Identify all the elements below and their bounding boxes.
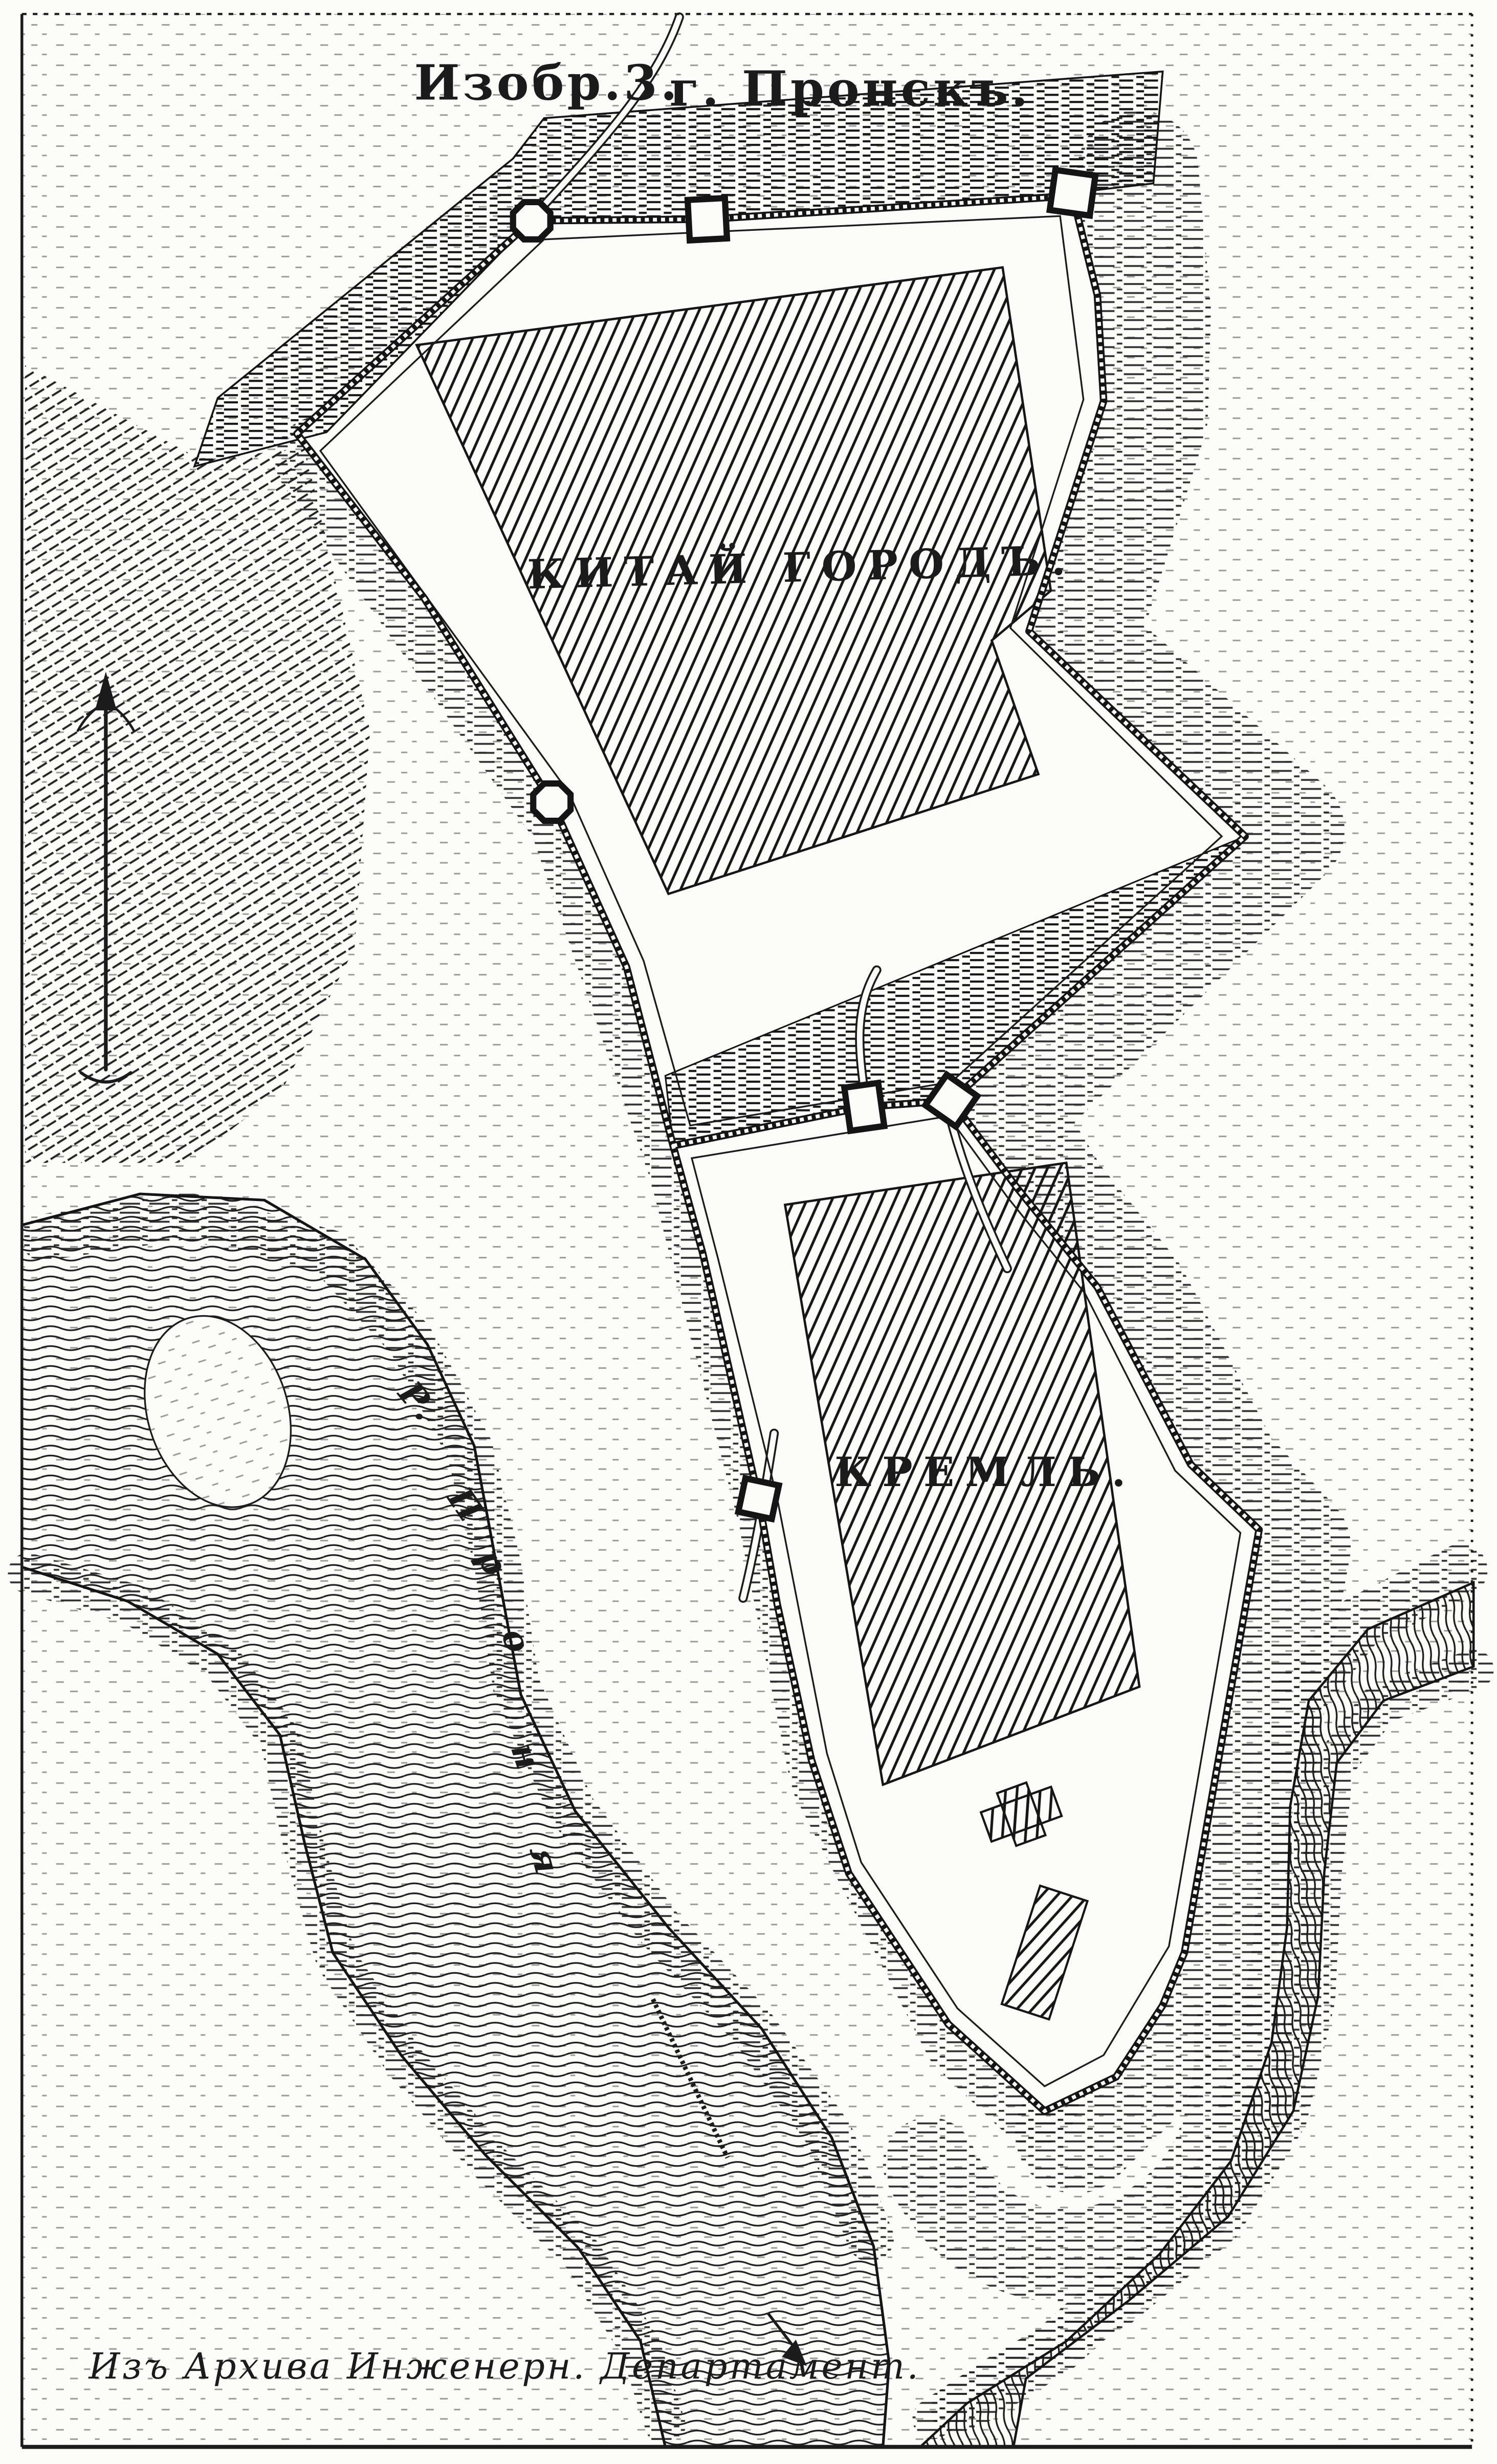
archive-caption: Изъ Архива Инженерн. Департамент. xyxy=(87,2346,920,2387)
octagon-tower-west xyxy=(533,783,570,821)
square-tower-middle-left xyxy=(844,1083,884,1131)
figure-number: Изобр.3. xyxy=(414,55,680,111)
pronsk-map: Изобр.3. г. Пронскъ. КИТАЙ ГОРОДЪ. КРЕМЛ… xyxy=(0,0,1497,2464)
square-tower-north-gate xyxy=(688,198,727,241)
octagon-tower-northwest xyxy=(513,202,551,239)
kremlin-label: КРЕМЛЬ. xyxy=(834,1448,1136,1496)
map-title-city: г. Пронскъ. xyxy=(670,61,1031,118)
square-tower-northeast xyxy=(1050,170,1095,215)
square-tower-kremlin-west xyxy=(738,1478,779,1519)
